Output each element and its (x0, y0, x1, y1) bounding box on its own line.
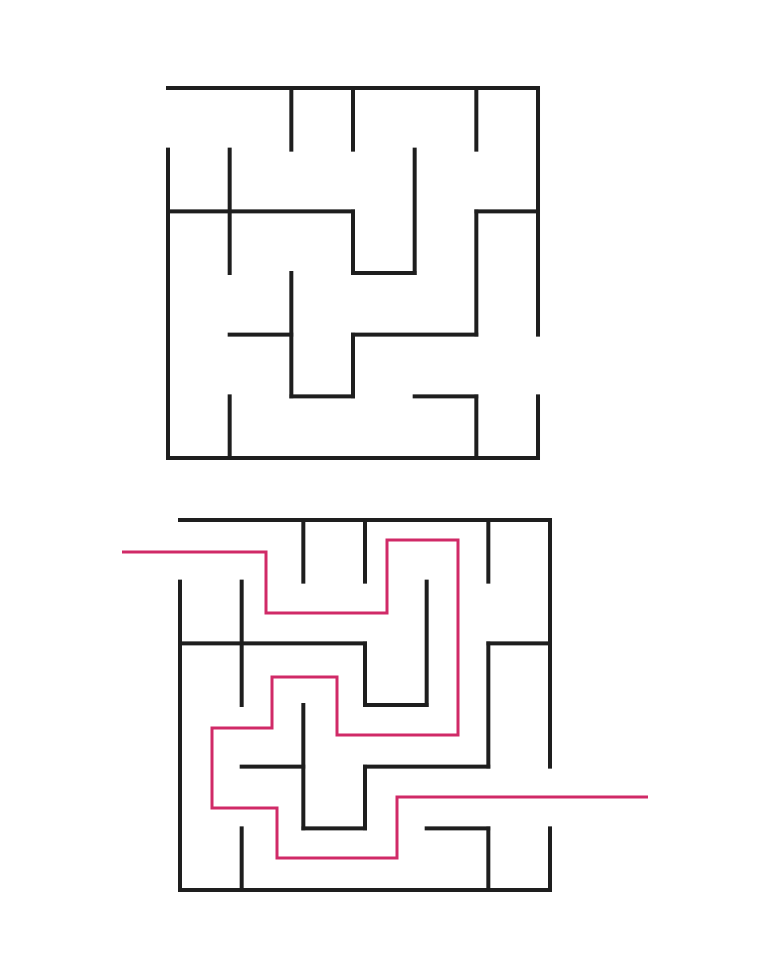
solution-path (122, 540, 648, 858)
unsolved-maze (168, 88, 538, 458)
solved-maze (180, 520, 550, 890)
page (0, 0, 758, 980)
maze-scene (0, 0, 758, 980)
